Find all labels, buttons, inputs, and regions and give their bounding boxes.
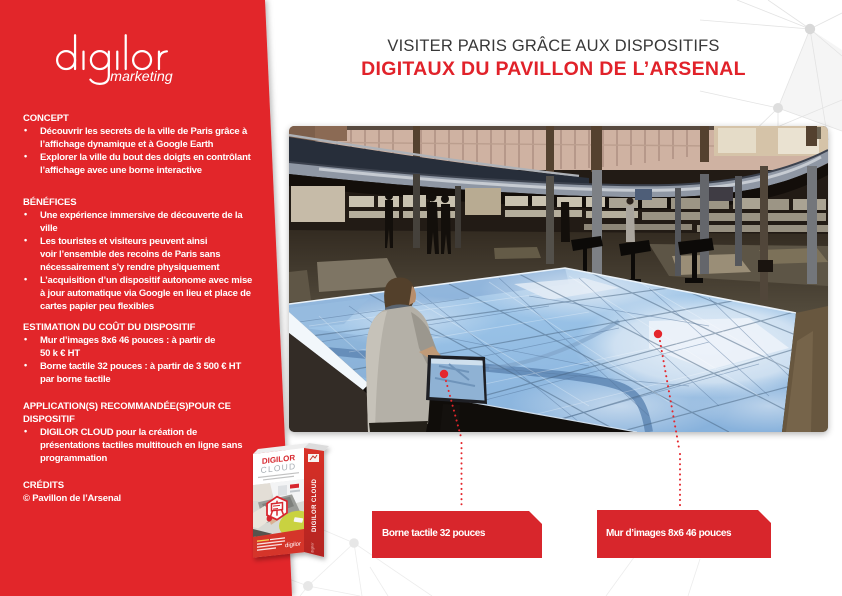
svg-text:digilor: digilor	[310, 542, 315, 553]
svg-text:marketing: marketing	[110, 69, 173, 85]
svg-text:DIGILOR CLOUD: DIGILOR CLOUD	[312, 479, 318, 532]
